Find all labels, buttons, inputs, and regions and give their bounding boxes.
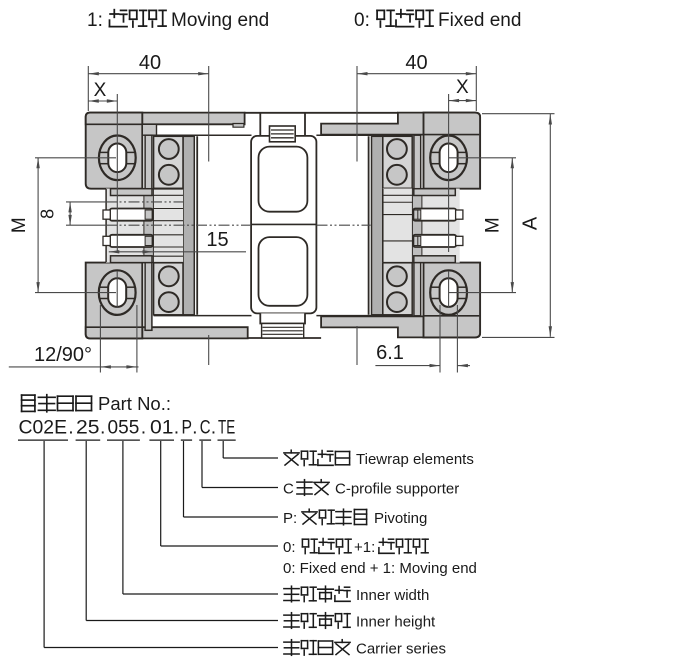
- svg-text:TE: TE: [218, 417, 235, 439]
- svg-text:01: 01: [150, 417, 174, 439]
- svg-text:+1:: +1:: [354, 539, 375, 556]
- svg-text:Moving end: Moving end: [171, 10, 269, 31]
- svg-text:Part No.:: Part No.:: [98, 393, 171, 414]
- svg-text:1:: 1:: [87, 10, 103, 31]
- svg-text:Pivoting: Pivoting: [374, 510, 427, 527]
- svg-text:40: 40: [139, 52, 161, 74]
- svg-text:X: X: [456, 77, 469, 98]
- svg-text:.: .: [174, 417, 179, 439]
- svg-text:C: C: [200, 417, 211, 439]
- svg-text:X: X: [94, 80, 107, 101]
- svg-text:Inner width: Inner width: [356, 587, 429, 604]
- svg-text:.: .: [68, 417, 73, 439]
- svg-text:C02E: C02E: [19, 417, 68, 439]
- svg-text:0:: 0:: [283, 539, 296, 556]
- svg-text:Inner height: Inner height: [356, 614, 436, 631]
- svg-text:P: P: [182, 417, 193, 439]
- svg-text:40: 40: [405, 52, 427, 74]
- svg-text:P:: P:: [283, 510, 297, 527]
- svg-text:M: M: [9, 217, 30, 233]
- svg-text:.: .: [192, 417, 197, 439]
- svg-text:Carrier series: Carrier series: [356, 641, 446, 658]
- svg-text:055: 055: [108, 417, 140, 439]
- svg-text:6.1: 6.1: [376, 342, 404, 364]
- svg-text:M: M: [483, 217, 504, 233]
- svg-text:8: 8: [38, 209, 58, 219]
- svg-text:C: C: [283, 481, 294, 498]
- svg-text:A: A: [520, 216, 542, 230]
- svg-text:Tiewrap elements: Tiewrap elements: [356, 451, 474, 468]
- svg-text:.: .: [211, 417, 216, 439]
- svg-text:12/90°: 12/90°: [34, 344, 92, 366]
- svg-text:0:: 0:: [354, 10, 370, 31]
- svg-text:25: 25: [76, 417, 100, 439]
- svg-text:.: .: [141, 417, 146, 439]
- svg-text:0: Fixed end + 1: Moving end: 0: Fixed end + 1: Moving end: [283, 560, 477, 577]
- svg-text:15: 15: [206, 229, 228, 251]
- svg-text:.: .: [100, 417, 105, 439]
- svg-text:Fixed end: Fixed end: [438, 10, 521, 31]
- svg-text:C-profile supporter: C-profile supporter: [335, 481, 459, 498]
